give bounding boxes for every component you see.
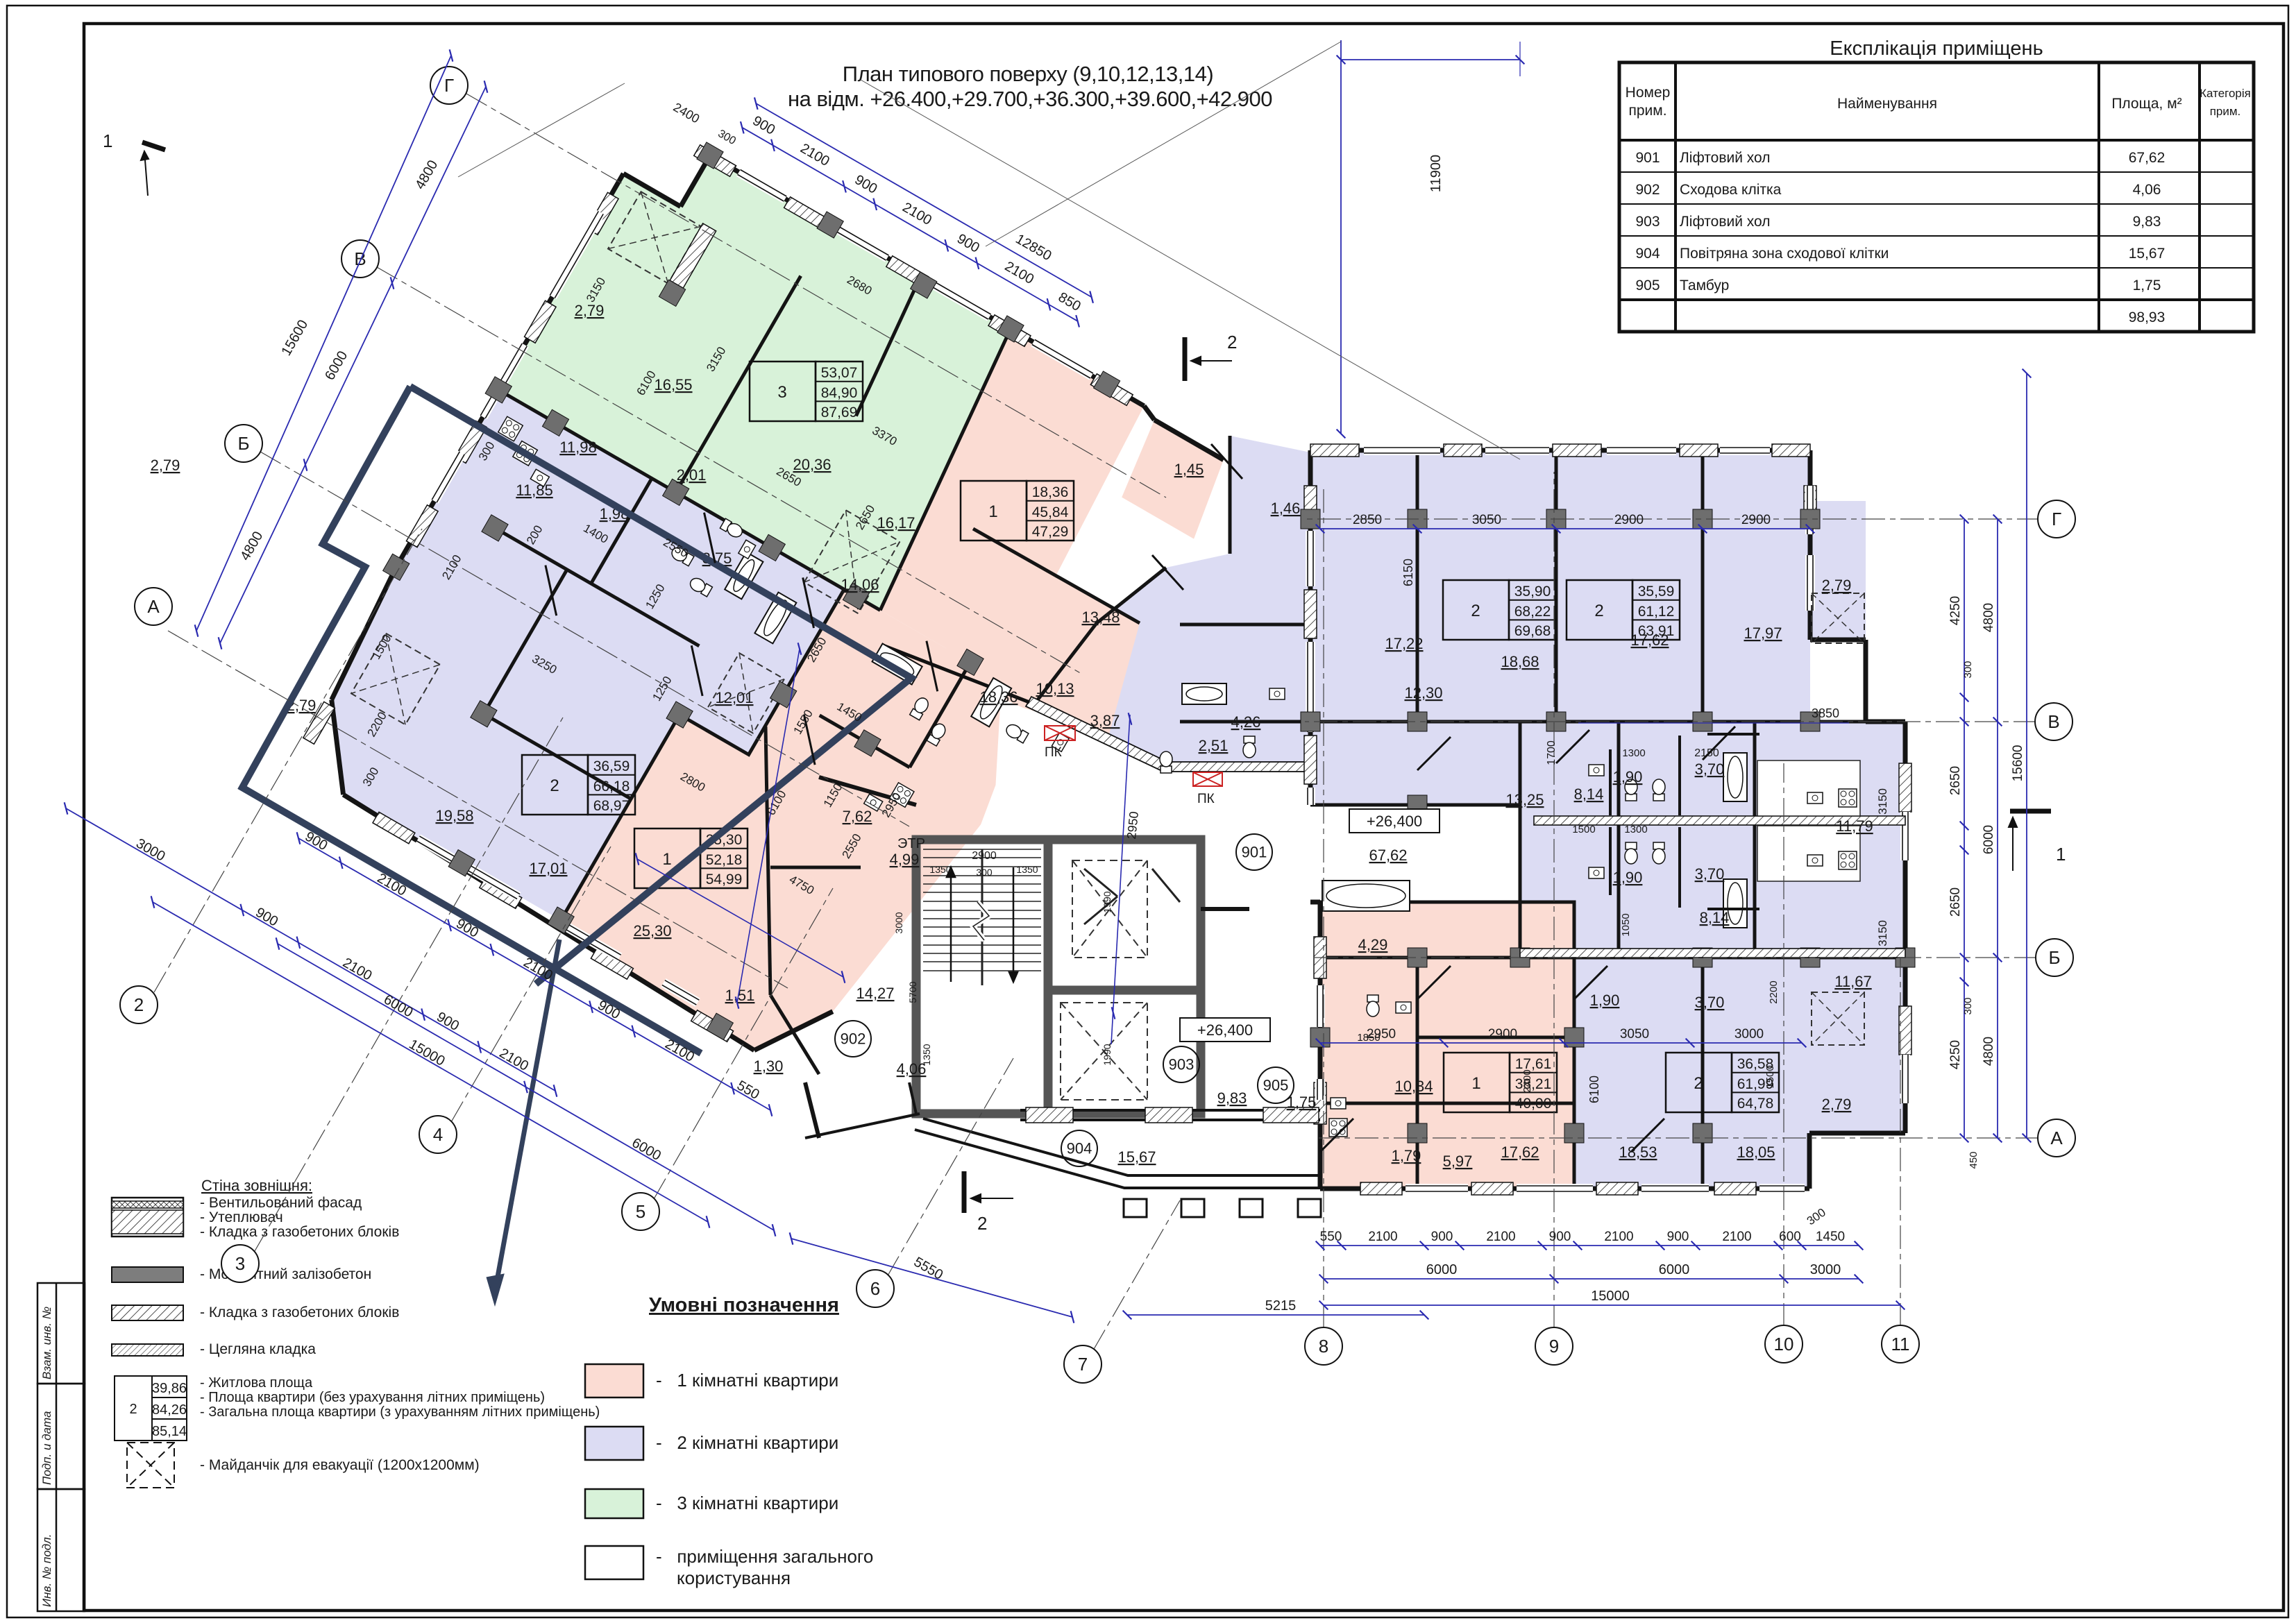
- svg-text:2,79: 2,79: [1822, 1096, 1852, 1113]
- svg-text:15600: 15600: [2011, 745, 2025, 782]
- svg-text:Подп. и дата: Подп. и дата: [40, 1411, 53, 1485]
- svg-text:6000: 6000: [1426, 1262, 1458, 1277]
- svg-text:3,70: 3,70: [1695, 994, 1725, 1011]
- svg-text:2150: 2150: [1694, 747, 1719, 759]
- svg-text:68,97: 68,97: [593, 798, 630, 814]
- svg-text:600: 600: [1779, 1230, 1801, 1244]
- svg-text:550: 550: [1320, 1230, 1342, 1244]
- svg-text:1: 1: [2056, 844, 2066, 865]
- svg-text:1500: 1500: [1764, 1065, 1776, 1088]
- svg-text:2100: 2100: [1604, 1230, 1633, 1244]
- svg-text:15000: 15000: [1591, 1289, 1630, 1304]
- svg-text:18,36: 18,36: [979, 688, 1018, 706]
- svg-text:2: 2: [1594, 602, 1603, 620]
- svg-text:300: 300: [976, 867, 993, 878]
- svg-text:19,58: 19,58: [435, 807, 473, 824]
- svg-text:3050: 3050: [1620, 1027, 1649, 1042]
- svg-text:6100: 6100: [1587, 1076, 1601, 1103]
- svg-text:Сходова клітка: Сходова клітка: [1680, 182, 1782, 198]
- svg-text:- Майданчік для евакуації (120: - Майданчік для евакуації (1200х1200мм): [200, 1457, 480, 1473]
- svg-text:20,36: 20,36: [793, 456, 831, 473]
- svg-text:1,30: 1,30: [754, 1057, 784, 1075]
- svg-text:84,90: 84,90: [821, 385, 858, 401]
- svg-text:1500: 1500: [1572, 824, 1595, 835]
- svg-text:- Вентильований фасад: - Вентильований фасад: [200, 1195, 362, 1211]
- svg-text:3,87: 3,87: [1090, 712, 1120, 729]
- svg-text:450: 450: [1968, 1151, 1980, 1169]
- svg-text:300: 300: [1962, 997, 1974, 1014]
- svg-text:1700: 1700: [1546, 740, 1558, 765]
- svg-text:12,01: 12,01: [715, 689, 753, 706]
- svg-text:8,14: 8,14: [1574, 785, 1604, 803]
- svg-text:1,90: 1,90: [1613, 768, 1643, 785]
- svg-text:2,01: 2,01: [677, 466, 707, 484]
- svg-text:39,86: 39,86: [152, 1381, 187, 1396]
- svg-text:5,97: 5,97: [1443, 1153, 1473, 1170]
- svg-text:11,98: 11,98: [559, 439, 596, 456]
- svg-text:13,25: 13,25: [1505, 791, 1544, 808]
- svg-text:- 2 кімнатні квартири: - 2 кімнатні квартири: [656, 1432, 838, 1453]
- svg-text:3,70: 3,70: [1695, 865, 1725, 883]
- svg-text:36,59: 36,59: [593, 758, 630, 774]
- svg-text:40,00: 40,00: [1515, 1096, 1552, 1112]
- svg-text:ЭТР: ЭТР: [897, 836, 925, 851]
- svg-text:прим.: прим.: [1628, 103, 1666, 119]
- svg-text:3000: 3000: [1734, 1027, 1764, 1042]
- svg-text:4,29: 4,29: [1358, 936, 1388, 953]
- svg-text:1,75: 1,75: [2133, 278, 2161, 294]
- svg-text:904: 904: [1635, 246, 1660, 262]
- svg-text:3050: 3050: [1472, 513, 1501, 527]
- svg-text:17,62: 17,62: [1501, 1144, 1539, 1161]
- svg-text:Категорія: Категорія: [2200, 87, 2251, 100]
- svg-text:6: 6: [870, 1278, 880, 1299]
- svg-text:Умовні позначення: Умовні позначення: [649, 1294, 839, 1316]
- svg-text:900: 900: [1667, 1230, 1689, 1244]
- svg-text:6150: 6150: [1401, 559, 1415, 586]
- svg-text:2100: 2100: [1368, 1230, 1397, 1244]
- svg-text:13,48: 13,48: [1081, 609, 1120, 626]
- svg-text:7: 7: [1078, 1354, 1088, 1375]
- svg-text:9,83: 9,83: [2133, 214, 2161, 230]
- svg-text:2950: 2950: [1124, 810, 1141, 840]
- svg-text:3,70: 3,70: [1695, 760, 1725, 778]
- svg-text:11900: 11900: [1428, 155, 1444, 192]
- svg-text:1,90: 1,90: [1613, 869, 1643, 886]
- svg-text:54,99: 54,99: [706, 872, 743, 887]
- svg-text:3: 3: [777, 383, 786, 402]
- svg-text:11,67: 11,67: [1834, 973, 1871, 990]
- svg-text:6000: 6000: [1982, 825, 1996, 854]
- svg-text:1350: 1350: [921, 1044, 932, 1065]
- svg-text:25,30: 25,30: [633, 922, 671, 940]
- svg-text:61,12: 61,12: [1638, 604, 1675, 620]
- svg-text:Инв. № подл.: Инв. № подл.: [40, 1534, 53, 1608]
- svg-text:А: А: [2050, 1128, 2063, 1148]
- svg-text:10,13: 10,13: [1036, 680, 1074, 697]
- svg-text:4800: 4800: [1982, 603, 1996, 632]
- svg-text:84,26: 84,26: [152, 1402, 187, 1418]
- svg-text:Ліфтовий хол: Ліфтовий хол: [1680, 150, 1771, 166]
- svg-text:1,75: 1,75: [1287, 1094, 1317, 1111]
- svg-text:8: 8: [1319, 1336, 1328, 1357]
- svg-text:2900: 2900: [972, 850, 997, 862]
- svg-text:14,27: 14,27: [856, 985, 894, 1002]
- svg-text:Повітряна зона сходової клітки: Повітряна зона сходової клітки: [1680, 246, 1889, 262]
- svg-text:- приміщення загального: - приміщення загального: [656, 1546, 873, 1567]
- svg-text:1850: 1850: [1357, 1032, 1380, 1044]
- svg-text:ПК: ПК: [1197, 792, 1215, 806]
- svg-text:Площа, м²: Площа, м²: [2111, 96, 2181, 112]
- svg-text:2: 2: [550, 776, 559, 795]
- svg-text:ПК: ПК: [1045, 745, 1062, 760]
- svg-text:17,61: 17,61: [1515, 1056, 1552, 1072]
- svg-text:17,22: 17,22: [1385, 635, 1423, 652]
- svg-text:2400: 2400: [1521, 1069, 1533, 1092]
- svg-text:52,18: 52,18: [706, 852, 743, 868]
- svg-text:2: 2: [1694, 1074, 1703, 1093]
- svg-text:18,68: 18,68: [1501, 653, 1539, 670]
- svg-text:2: 2: [129, 1402, 137, 1417]
- svg-text:1300: 1300: [1624, 824, 1647, 835]
- svg-text:1450: 1450: [1816, 1230, 1845, 1244]
- svg-text:1,90: 1,90: [1590, 992, 1620, 1009]
- svg-text:- Загальна площа квартири (з у: - Загальна площа квартири (з урахуванням…: [200, 1404, 600, 1420]
- svg-text:1350: 1350: [1016, 864, 1038, 875]
- svg-text:903: 903: [1635, 214, 1660, 230]
- svg-text:14,06: 14,06: [841, 576, 879, 593]
- svg-text:905: 905: [1263, 1077, 1289, 1094]
- svg-text:1,79: 1,79: [1392, 1147, 1421, 1164]
- svg-text:2200: 2200: [1768, 980, 1780, 1003]
- svg-text:- Кладка з газобетоних блоків: - Кладка з газобетоних блоків: [200, 1305, 399, 1320]
- svg-text:1300: 1300: [1622, 747, 1645, 759]
- svg-text:5700: 5700: [907, 981, 918, 1003]
- svg-text:2: 2: [134, 994, 144, 1015]
- svg-text:1: 1: [988, 502, 997, 521]
- svg-text:2,79: 2,79: [1822, 577, 1852, 594]
- svg-text:11: 11: [1891, 1334, 1910, 1354]
- svg-text:901: 901: [1635, 150, 1660, 166]
- svg-text:2650: 2650: [1948, 766, 1963, 795]
- svg-text:11,85: 11,85: [516, 482, 552, 499]
- svg-text:3150: 3150: [1876, 788, 1889, 815]
- svg-text:17,01: 17,01: [529, 860, 567, 877]
- svg-text:66,18: 66,18: [593, 779, 630, 794]
- svg-text:1350: 1350: [929, 864, 951, 875]
- svg-text:3150: 3150: [1876, 920, 1889, 946]
- svg-text:903: 903: [1169, 1056, 1195, 1073]
- svg-text:2900: 2900: [1488, 1027, 1517, 1042]
- svg-text:А: А: [147, 596, 160, 617]
- svg-text:64,78: 64,78: [1737, 1096, 1774, 1112]
- svg-text:38,21: 38,21: [1515, 1076, 1552, 1092]
- svg-text:67,62: 67,62: [1369, 847, 1407, 864]
- svg-text:+26,400: +26,400: [1367, 813, 1422, 830]
- svg-text:85,14: 85,14: [152, 1424, 187, 1439]
- svg-text:- 3 кімнатні квартири: - 3 кімнатні квартири: [656, 1493, 838, 1513]
- svg-text:2: 2: [1227, 332, 1237, 352]
- svg-text:3: 3: [235, 1253, 245, 1274]
- svg-text:2,51: 2,51: [1199, 737, 1229, 754]
- svg-text:9,83: 9,83: [1217, 1089, 1247, 1107]
- svg-text:- Цегляна кладка: - Цегляна кладка: [200, 1341, 316, 1357]
- svg-text:63,91: 63,91: [1638, 623, 1675, 639]
- svg-text:План типового поверху (9,10,1: План типового поверху (9,10,12,13,14): [843, 62, 1213, 86]
- svg-text:Взам. инв. №: Взам. инв. №: [40, 1307, 53, 1379]
- svg-text:- 1 кімнатні квартири: - 1 кімнатні квартири: [656, 1370, 838, 1391]
- svg-text:Б: Б: [2048, 947, 2060, 968]
- svg-text:2900: 2900: [1614, 513, 1644, 527]
- svg-text:3850: 3850: [1812, 706, 1839, 720]
- svg-text:В: В: [2048, 711, 2059, 732]
- svg-text:на відм. +26.400,+29.700,+36.3: на відм. +26.400,+29.700,+36.300,+39.600…: [788, 87, 1272, 111]
- svg-text:2: 2: [1471, 602, 1480, 620]
- svg-text:1: 1: [103, 130, 112, 151]
- svg-text:17,97: 17,97: [1744, 624, 1782, 642]
- svg-text:прим.: прим.: [2210, 105, 2241, 118]
- svg-text:900: 900: [1549, 1230, 1571, 1244]
- svg-text:4,06: 4,06: [2133, 182, 2161, 198]
- svg-text:35,90: 35,90: [1514, 584, 1551, 600]
- svg-text:4: 4: [433, 1124, 443, 1145]
- svg-text:2: 2: [977, 1213, 987, 1234]
- svg-text:16,55: 16,55: [654, 376, 692, 393]
- svg-text:2900: 2900: [1741, 513, 1771, 527]
- svg-text:1: 1: [662, 850, 671, 869]
- svg-text:Г: Г: [444, 75, 454, 96]
- svg-text:користування: користування: [677, 1567, 791, 1588]
- svg-text:15,67: 15,67: [2129, 246, 2166, 262]
- svg-text:Номер: Номер: [1626, 85, 1671, 101]
- svg-text:2100: 2100: [1486, 1230, 1515, 1244]
- svg-text:7,62: 7,62: [843, 808, 872, 825]
- svg-text:5215: 5215: [1265, 1298, 1297, 1314]
- svg-text:47,29: 47,29: [1032, 524, 1069, 540]
- svg-text:2650: 2650: [1948, 887, 1963, 917]
- svg-text:2100: 2100: [1722, 1230, 1751, 1244]
- svg-text:8,14: 8,14: [1700, 909, 1730, 926]
- svg-text:5: 5: [636, 1201, 645, 1222]
- svg-text:Ліфтовий хол: Ліфтовий хол: [1680, 214, 1771, 230]
- svg-text:4800: 4800: [1982, 1037, 1996, 1066]
- svg-text:1,46: 1,46: [1271, 500, 1301, 517]
- svg-text:11,79: 11,79: [1836, 817, 1873, 835]
- svg-text:9: 9: [1549, 1336, 1559, 1357]
- svg-text:4,26: 4,26: [1231, 713, 1261, 731]
- svg-text:- Житлова площа: - Житлова площа: [200, 1375, 313, 1391]
- svg-text:4,99: 4,99: [890, 851, 920, 868]
- svg-text:18,05: 18,05: [1737, 1144, 1775, 1161]
- svg-text:16,17: 16,17: [877, 514, 915, 532]
- svg-text:905: 905: [1635, 278, 1660, 294]
- svg-text:15,67: 15,67: [1117, 1148, 1156, 1166]
- svg-text:18,36: 18,36: [1032, 484, 1069, 500]
- svg-text:Г: Г: [2052, 509, 2061, 529]
- svg-text:Найменування: Найменування: [1837, 96, 1937, 112]
- svg-text:Експлікація приміщень: Експлікація приміщень: [1830, 37, 2043, 60]
- svg-text:10: 10: [1774, 1334, 1794, 1354]
- svg-text:Тамбур: Тамбур: [1680, 278, 1729, 294]
- svg-text:2850: 2850: [1353, 513, 1382, 527]
- svg-text:901: 901: [1242, 844, 1267, 861]
- svg-text:1: 1: [1471, 1074, 1480, 1093]
- svg-text:4250: 4250: [1948, 1040, 1963, 1069]
- svg-text:6000: 6000: [1659, 1262, 1690, 1277]
- svg-text:98,93: 98,93: [2129, 309, 2166, 325]
- svg-text:900: 900: [1431, 1230, 1453, 1244]
- svg-text:53,07: 53,07: [821, 365, 858, 381]
- svg-text:45,84: 45,84: [1032, 504, 1069, 520]
- svg-text:10,34: 10,34: [1394, 1078, 1433, 1095]
- svg-text:3000: 3000: [1810, 1262, 1841, 1277]
- svg-text:1,45: 1,45: [1174, 461, 1204, 478]
- svg-text:4250: 4250: [1948, 596, 1963, 625]
- svg-text:- Кладка з газобетоних блоків: - Кладка з газобетоних блоків: [200, 1224, 399, 1240]
- svg-text:69,68: 69,68: [1514, 623, 1551, 639]
- svg-text:1990: 1990: [1101, 891, 1113, 912]
- svg-text:87,69: 87,69: [821, 405, 858, 420]
- svg-text:12,30: 12,30: [1404, 684, 1442, 702]
- svg-text:1990: 1990: [1101, 1044, 1113, 1065]
- svg-text:35,59: 35,59: [1638, 584, 1675, 600]
- svg-text:300: 300: [1962, 661, 1974, 678]
- svg-text:3000: 3000: [893, 912, 904, 933]
- svg-text:+26,400: +26,400: [1197, 1021, 1253, 1039]
- svg-text:67,62: 67,62: [2129, 150, 2166, 166]
- svg-text:Б: Б: [237, 433, 249, 454]
- svg-text:2,79: 2,79: [151, 457, 180, 474]
- svg-text:902: 902: [841, 1030, 866, 1048]
- svg-text:1050: 1050: [1620, 913, 1632, 936]
- svg-text:- Площа квартири (без урахуван: - Площа квартири (без урахування літних …: [200, 1390, 545, 1405]
- svg-text:2,79: 2,79: [575, 302, 605, 319]
- svg-text:904: 904: [1067, 1140, 1092, 1157]
- svg-text:902: 902: [1635, 182, 1660, 198]
- svg-text:68,22: 68,22: [1514, 604, 1551, 620]
